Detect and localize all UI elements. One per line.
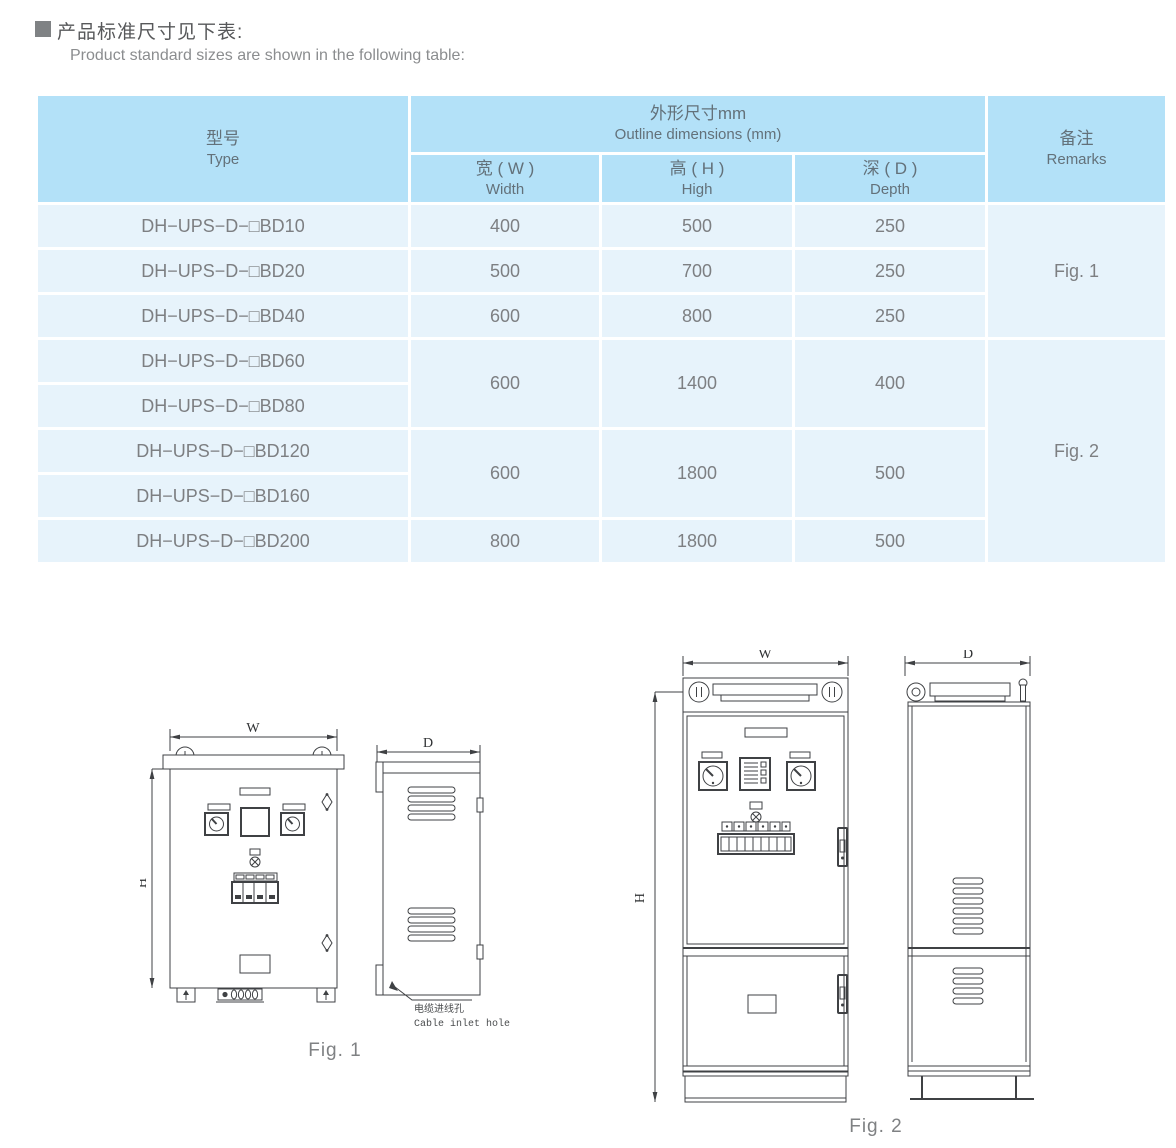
- col-header-outline: 外形尺寸mm Outline dimensions (mm): [410, 95, 987, 154]
- cell-width: 800: [410, 519, 601, 564]
- cell-high: 700: [601, 249, 794, 294]
- header-width-zh: 宽 ( W ): [411, 158, 599, 180]
- fig2-drawing: W H: [635, 650, 1045, 1110]
- title-chinese: 产品标准尺寸见下表:: [57, 17, 243, 44]
- square-bullet-icon: [35, 21, 51, 37]
- title-english: Product standard sizes are shown in the …: [70, 47, 465, 65]
- header-remarks-zh: 备注: [988, 128, 1165, 150]
- fig1-cable-gland: [216, 989, 264, 1002]
- col-header-type: 型号 Type: [37, 95, 410, 204]
- cell-width: 500: [410, 249, 601, 294]
- cell-type: DH−UPS−D−□BD20: [37, 249, 410, 294]
- col-header-width: 宽 ( W ) Width: [410, 154, 601, 204]
- cell-width: 600: [410, 429, 601, 519]
- fig1-cable-label-zh: 电缆进线孔: [414, 1002, 464, 1016]
- fig1-dim-w: W: [170, 721, 337, 751]
- cell-depth: 400: [794, 339, 987, 429]
- cell-depth: 250: [794, 249, 987, 294]
- cell-depth: 250: [794, 204, 987, 249]
- fig1-dim-h: H: [140, 769, 170, 988]
- cell-type: DH−UPS−D−□BD10: [37, 204, 410, 249]
- fig2-side-view: [907, 679, 1034, 1099]
- fig1-caption: Fig. 1: [302, 1040, 368, 1062]
- fig1-side-view: 电缆进线孔 Cable inlet hole: [376, 762, 510, 1030]
- cell-type: DH−UPS−D−□BD160: [37, 474, 410, 519]
- header-depth-en: Depth: [795, 180, 985, 200]
- fig1-dim-d: D: [377, 736, 480, 762]
- cell-type: DH−UPS−D−□BD80: [37, 384, 410, 429]
- header-high-zh: 高 ( H ): [602, 158, 792, 180]
- col-header-remarks: 备注 Remarks: [987, 95, 1167, 204]
- cell-high: 800: [601, 294, 794, 339]
- fig1-hinge-bottom: [477, 945, 483, 959]
- fig1-d-label: D: [423, 736, 433, 751]
- fig1-h-label: H: [140, 878, 150, 888]
- fig2-w-label: W: [758, 650, 772, 662]
- fig2-base-side: [908, 1066, 1034, 1099]
- fig2-front-view: [683, 678, 848, 1102]
- header-high-en: High: [602, 180, 792, 200]
- cell-width: 600: [410, 294, 601, 339]
- cell-high: 1400: [601, 339, 794, 429]
- header-depth-zh: 深 ( D ): [795, 158, 985, 180]
- cell-depth: 500: [794, 519, 987, 564]
- cell-width: 600: [410, 339, 601, 429]
- table-row: DH−UPS−D−□BD60 600 1400 400 Fig. 2: [37, 339, 1167, 384]
- fig1-front-view: [163, 747, 344, 1002]
- header-width-en: Width: [411, 180, 599, 200]
- section-title: 产品标准尺寸见下表:: [35, 17, 243, 44]
- cell-depth: 500: [794, 429, 987, 519]
- fig1-drawing: W H: [140, 715, 520, 1075]
- cell-depth: 250: [794, 294, 987, 339]
- fig2-h-label: H: [635, 893, 648, 903]
- cell-remarks-fig1: Fig. 1: [987, 204, 1167, 339]
- cell-type: DH−UPS−D−□BD40: [37, 294, 410, 339]
- spec-table: 型号 Type 外形尺寸mm Outline dimensions (mm) 备…: [35, 93, 1168, 565]
- cell-high: 1800: [601, 519, 794, 564]
- cell-high: 500: [601, 204, 794, 249]
- header-type-en: Type: [38, 150, 408, 170]
- col-header-high: 高 ( H ) High: [601, 154, 794, 204]
- fig2-dim-w: W: [683, 650, 848, 676]
- cell-type: DH−UPS−D−□BD120: [37, 429, 410, 474]
- fig1-hinge-top: [477, 798, 483, 812]
- header-type-zh: 型号: [38, 128, 408, 150]
- fig2-base-front: [683, 1066, 848, 1102]
- cell-type: DH−UPS−D−□BD60: [37, 339, 410, 384]
- fig2-dim-d: D: [905, 650, 1030, 676]
- cell-width: 400: [410, 204, 601, 249]
- fig1-w-label: W: [246, 721, 260, 736]
- col-header-depth: 深 ( D ) Depth: [794, 154, 987, 204]
- fig1-cable-label-en: Cable inlet hole: [414, 1018, 510, 1030]
- header-outline-en: Outline dimensions (mm): [411, 125, 985, 145]
- page: 产品标准尺寸见下表: Product standard sizes are sh…: [0, 0, 1176, 1148]
- table-row: DH−UPS−D−□BD10 400 500 250 Fig. 1: [37, 204, 1167, 249]
- cell-type: DH−UPS−D−□BD200: [37, 519, 410, 564]
- cell-remarks-fig2: Fig. 2: [987, 339, 1167, 564]
- header-remarks-en: Remarks: [988, 150, 1165, 170]
- fig2-d-label: D: [963, 650, 973, 662]
- fig2-caption: Fig. 2: [843, 1116, 909, 1138]
- cell-high: 1800: [601, 429, 794, 519]
- header-outline-zh: 外形尺寸mm: [411, 103, 985, 125]
